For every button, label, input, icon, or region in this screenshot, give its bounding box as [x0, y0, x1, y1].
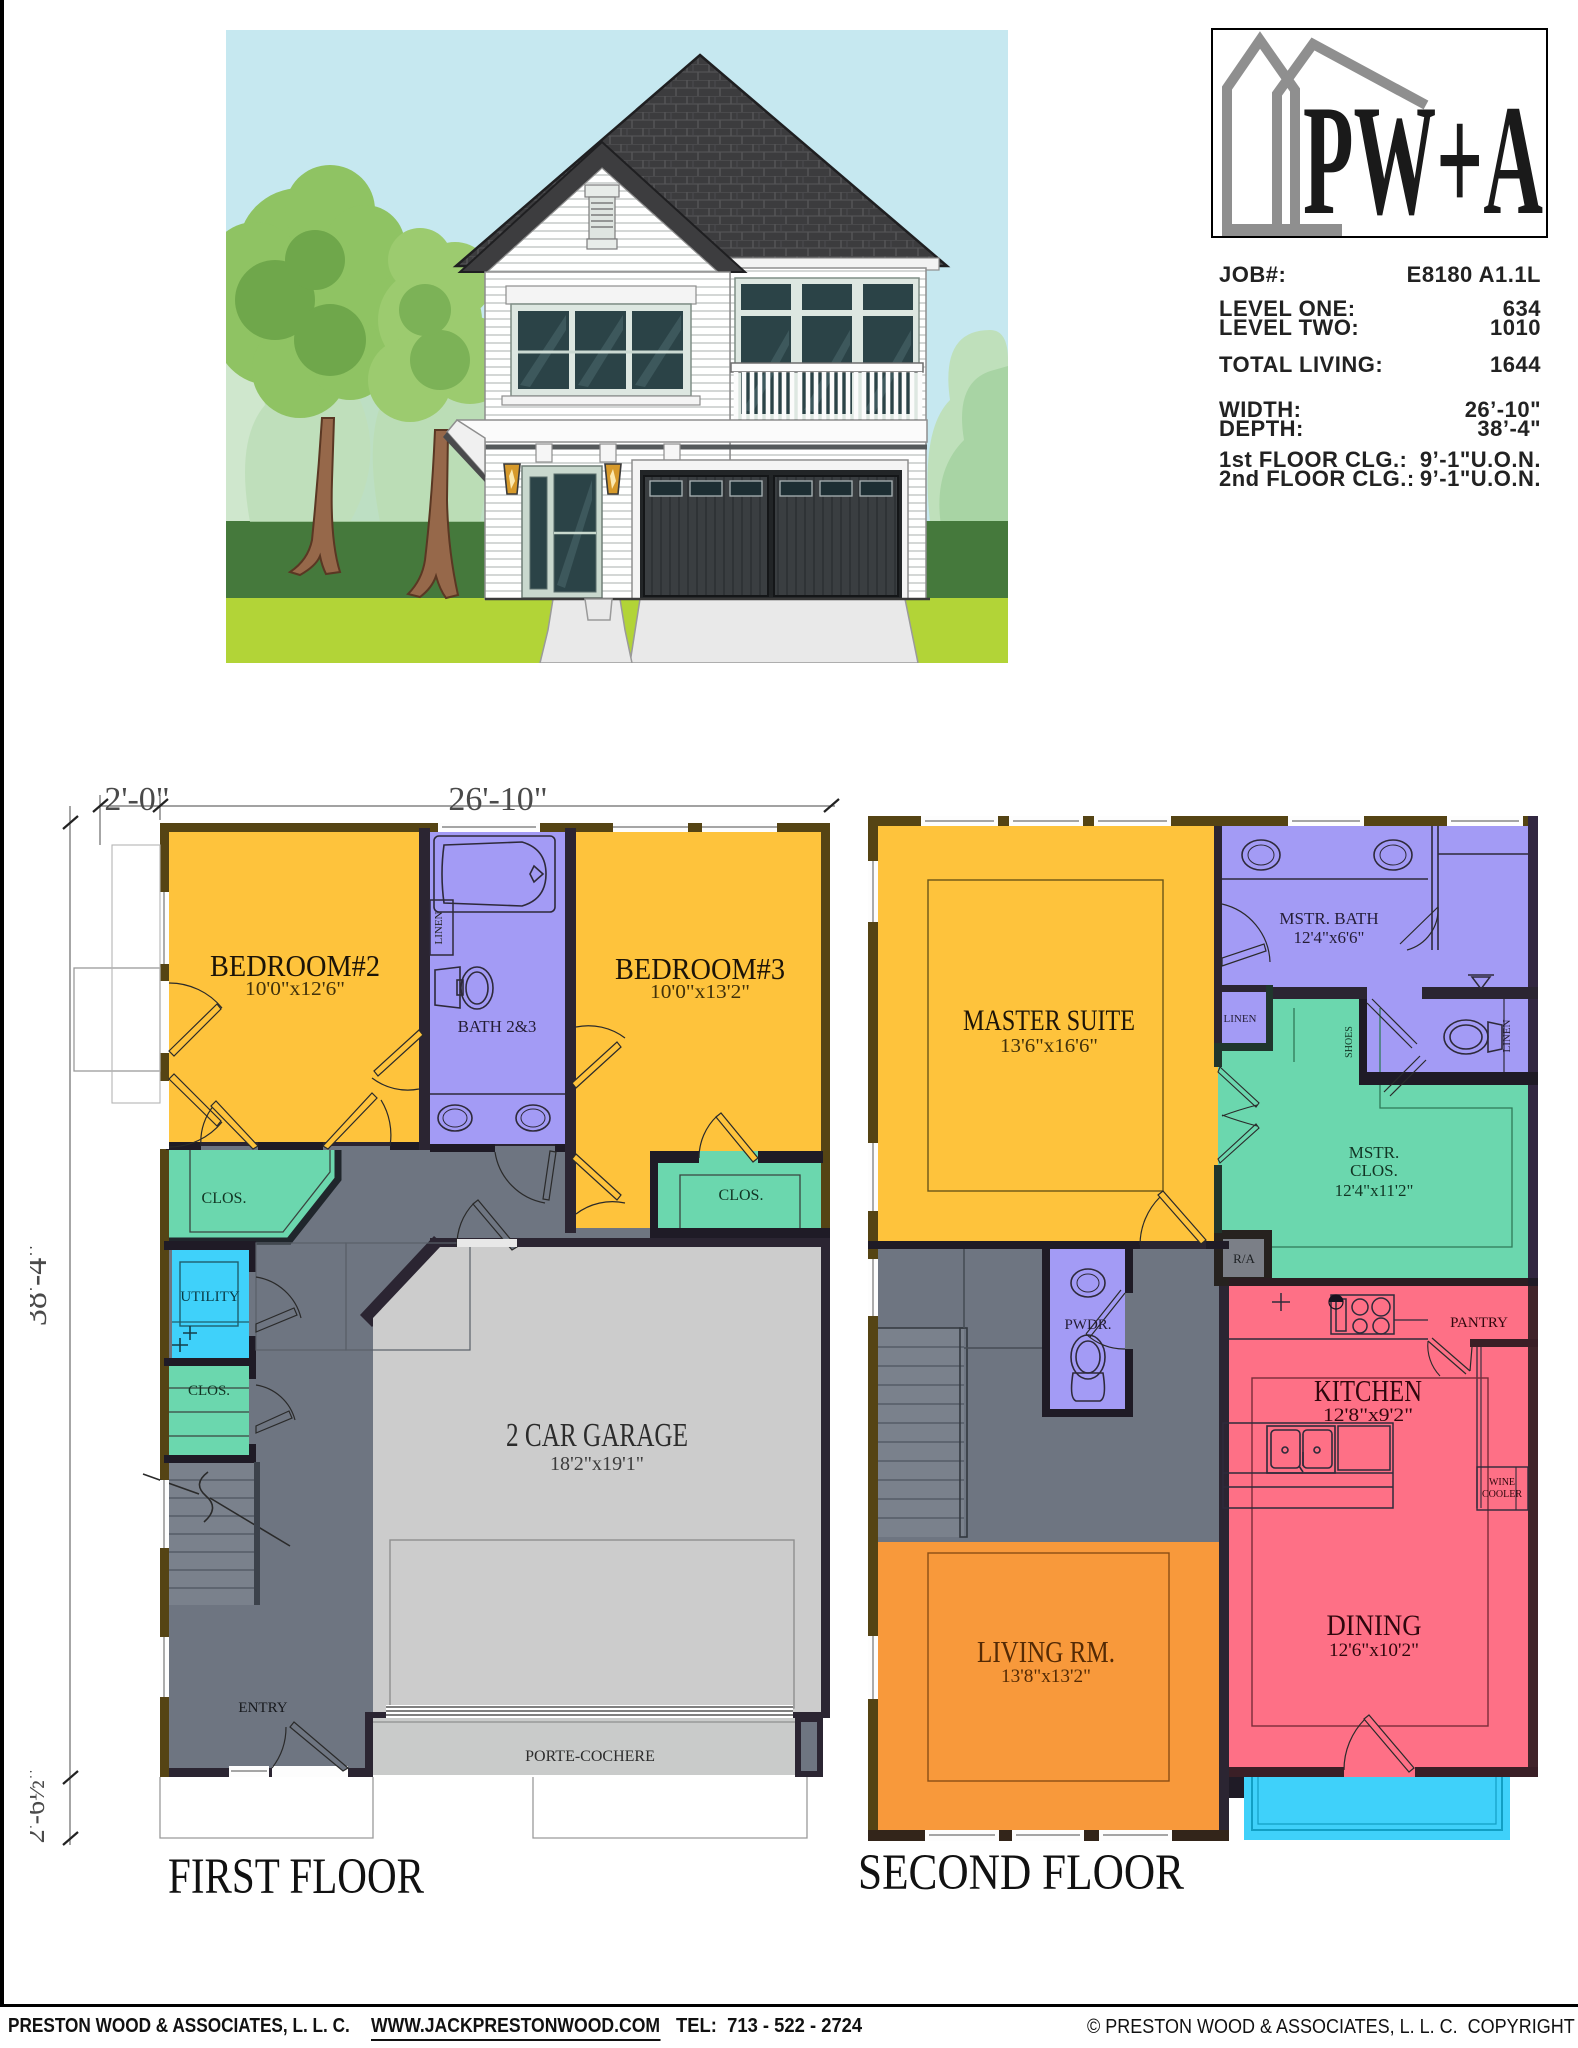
svg-text:WINE: WINE	[1489, 1477, 1515, 1488]
svg-text:SHOES: SHOES	[1344, 1026, 1355, 1058]
svg-text:LINEN: LINEN	[1224, 1013, 1257, 1025]
svg-text:BATH 2&3: BATH 2&3	[458, 1017, 537, 1036]
svg-text:CLOS.: CLOS.	[188, 1383, 230, 1399]
svg-text:MASTER SUITE: MASTER SUITE	[963, 1004, 1135, 1037]
svg-text:12'4"x11'2": 12'4"x11'2"	[1335, 1181, 1414, 1200]
svg-text:KITCHEN: KITCHEN	[1314, 1373, 1422, 1408]
svg-text:12'4"x6'6": 12'4"x6'6"	[1293, 928, 1364, 947]
svg-text:12'8"x9'2": 12'8"x9'2"	[1323, 1405, 1413, 1426]
svg-text:13'8"x13'2": 13'8"x13'2"	[1001, 1666, 1091, 1687]
svg-text:CLOS.: CLOS.	[719, 1187, 764, 1204]
svg-text:LIVING RM.: LIVING RM.	[977, 1634, 1115, 1669]
svg-text:2'-0": 2'-0"	[104, 781, 169, 818]
svg-text:PORTE-COCHERE: PORTE-COCHERE	[525, 1748, 655, 1765]
svg-text:10'0"x13'2": 10'0"x13'2"	[650, 981, 750, 1003]
svg-text:PW+A: PW+A	[1303, 73, 1543, 238]
svg-text:MSTR. BATH: MSTR. BATH	[1279, 909, 1378, 928]
svg-text:DINING: DINING	[1327, 1609, 1422, 1642]
svg-text:18'2"x19'1": 18'2"x19'1"	[550, 1453, 644, 1475]
svg-text:LINEN: LINEN	[1501, 1019, 1513, 1052]
svg-text:R/A: R/A	[1233, 1251, 1255, 1266]
svg-text:SECOND FLOOR: SECOND FLOOR	[858, 1845, 1184, 1901]
svg-text:COOLER: COOLER	[1482, 1489, 1522, 1500]
svg-text:ENTRY: ENTRY	[238, 1700, 287, 1716]
svg-text:2 CAR GARAGE: 2 CAR GARAGE	[506, 1417, 688, 1454]
svg-text:MSTR.: MSTR.	[1349, 1143, 1400, 1162]
svg-text:FIRST FLOOR: FIRST FLOOR	[168, 1849, 424, 1905]
svg-text:13'6"x16'6": 13'6"x16'6"	[1000, 1035, 1098, 1057]
svg-text:UTILITY: UTILITY	[180, 1289, 239, 1305]
svg-text:10'0"x12'6": 10'0"x12'6"	[245, 978, 345, 1000]
svg-text:38'-4": 38'-4"	[30, 1244, 54, 1326]
svg-text:12'6"x10'2": 12'6"x10'2"	[1329, 1640, 1419, 1661]
svg-text:2'-6½": 2'-6½"	[30, 1769, 51, 1844]
svg-text:26'-10": 26'-10"	[448, 781, 547, 818]
svg-text:CLOS.: CLOS.	[202, 1190, 247, 1207]
svg-text:PANTRY: PANTRY	[1450, 1315, 1508, 1331]
svg-text:PWDR.: PWDR.	[1064, 1317, 1111, 1333]
svg-text:LINEN: LINEN	[433, 911, 445, 944]
svg-text:CLOS.: CLOS.	[1350, 1161, 1398, 1180]
